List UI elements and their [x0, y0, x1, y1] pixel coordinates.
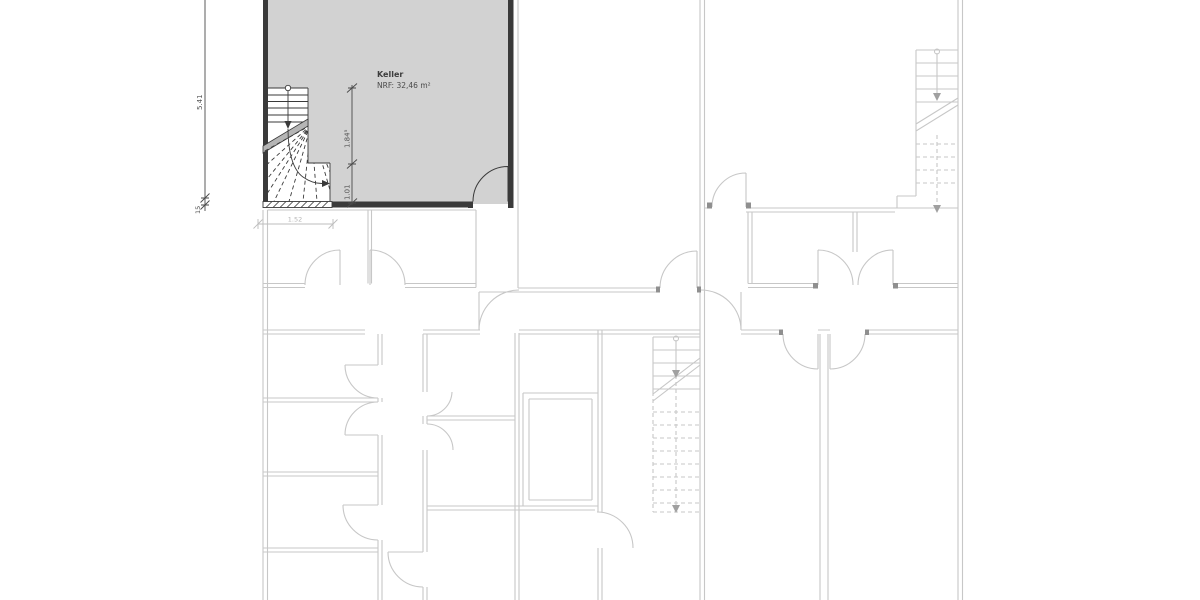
dimension-stair-length: 1.84⁵: [344, 129, 352, 148]
keller-wall-left: [263, 0, 268, 202]
dimension-stair-exit: 1.01: [344, 184, 352, 200]
cellar-rooms-right: [783, 334, 865, 600]
door-swing: [305, 250, 405, 285]
corridor-vertical-walls: [388, 334, 427, 600]
door-swing: [427, 392, 453, 450]
door-jamb: [468, 202, 473, 209]
storage-room-double-wall: [523, 393, 598, 506]
floor-plan-sheet: 5.41 15 1.84⁵ 1.01 1.52 Keller NRF: 32,4…: [0, 0, 1200, 600]
corridor-walls: [263, 292, 958, 334]
dimension-wall-thickness: 15: [194, 206, 202, 214]
dimension-height-total: 5.41: [196, 94, 204, 110]
arrow-down-icon: [933, 93, 941, 101]
cellar-rooms-left: [263, 334, 382, 600]
door-swing: [712, 173, 893, 285]
door-swing: [343, 365, 378, 540]
room-name-label: Keller: [377, 70, 403, 79]
floor-plan: 5.41 15 1.84⁵ 1.01 1.52 Keller NRF: 32,4…: [0, 0, 1200, 600]
door-jamb: [508, 202, 514, 209]
door-swing-large: [479, 290, 741, 330]
stairwell-top-right-hidden: [916, 135, 958, 205]
keller-wall-right: [508, 0, 514, 208]
right-building-walls: [700, 0, 963, 600]
stair-arrows-light: [672, 93, 941, 513]
arrow-down-icon: [933, 205, 941, 213]
dimension-room-width: 1.52: [288, 216, 302, 224]
arrow-down-icon: [672, 505, 680, 513]
keller-wall-hatched: [263, 202, 332, 208]
cellar-rooms-middle: [427, 330, 633, 600]
room-area-label: NRF: 32,46 m²: [377, 81, 431, 90]
stairwell-top-right: [897, 50, 958, 208]
middle-strip-walls: [518, 0, 697, 292]
stair-walkline-start: [285, 85, 290, 90]
